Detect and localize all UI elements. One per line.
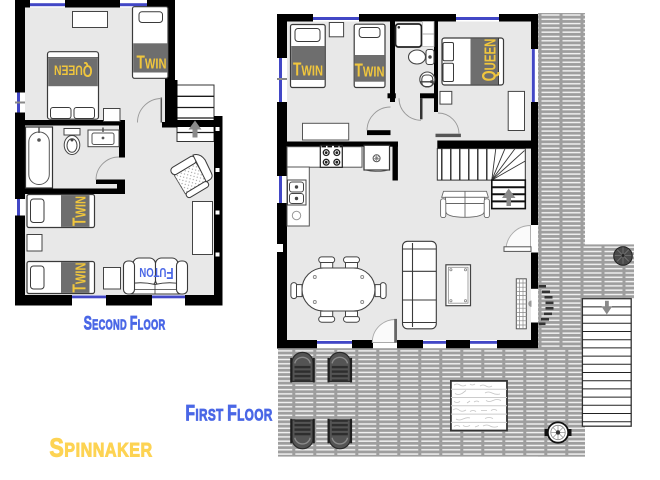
svg-text:TWIN: TWIN — [355, 60, 385, 80]
svg-text:TWIN: TWIN — [69, 196, 89, 226]
svg-text:SPINNAKER: SPINNAKER — [49, 435, 152, 463]
svg-text:SECOND FLOOR: SECOND FLOOR — [84, 313, 166, 334]
svg-text:TWIN: TWIN — [69, 263, 89, 293]
svg-text:QUEEN: QUEEN — [479, 39, 501, 82]
svg-text:FIRST FLOOR: FIRST FLOOR — [185, 402, 272, 426]
svg-text:TWIN: TWIN — [137, 52, 167, 72]
svg-text:QUEEN: QUEEN — [54, 61, 93, 80]
svg-text:TWIN: TWIN — [293, 59, 323, 79]
